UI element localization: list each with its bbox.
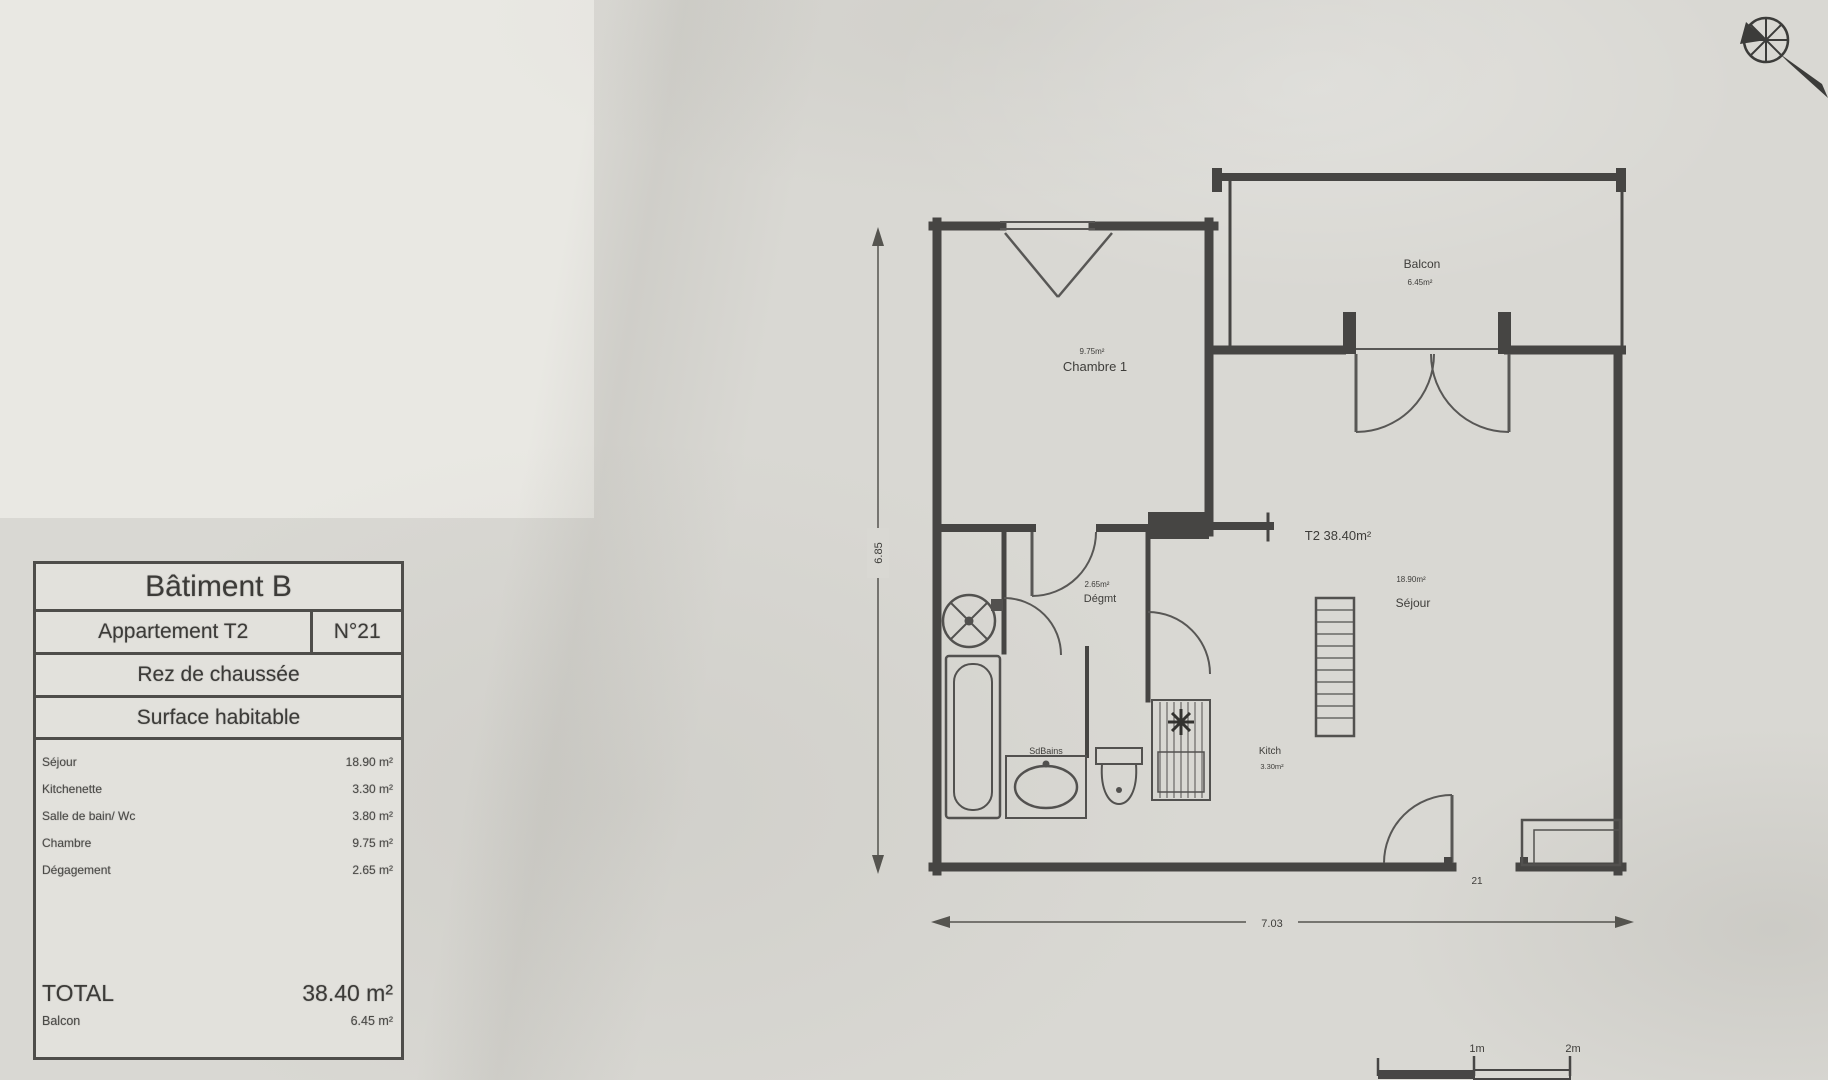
- sejour-area-label: 18.90m²: [1396, 575, 1426, 584]
- balcon-label: Balcon: [1404, 257, 1441, 271]
- balcony-door-arc-left: [1356, 354, 1434, 432]
- scale-label-1m: 1m: [1469, 1043, 1484, 1055]
- north-arrow-icon: [1740, 18, 1828, 98]
- window-casement-a: [1005, 233, 1058, 297]
- scale-bar-filled: [1378, 1070, 1474, 1079]
- kitchen-counter-rungs: [1316, 610, 1354, 718]
- balcony-door-jamb-left: [1343, 312, 1356, 354]
- dim-arrow-bottom: [872, 855, 884, 874]
- sink-faucet: [1043, 761, 1050, 768]
- toilet-drain: [1116, 787, 1122, 793]
- entrance-door-arc: [1384, 795, 1452, 863]
- fixtures: [943, 595, 1620, 865]
- window-casement-b: [1058, 233, 1112, 297]
- chambre-label: Chambre 1: [1063, 359, 1127, 374]
- degagement-area-label: 2.65m²: [1085, 580, 1110, 589]
- sink-basin: [1015, 766, 1077, 808]
- walls: [933, 222, 1622, 871]
- scale-bar: 1m 2m: [1378, 1043, 1581, 1079]
- door-arc-wc: [1148, 612, 1210, 674]
- unit-label: T2 38.40m²: [1305, 528, 1372, 543]
- entry-closet-inner: [1534, 830, 1620, 865]
- water-point: [991, 599, 1003, 611]
- doors-windows: [1000, 222, 1528, 869]
- washing-machine-hub: [965, 617, 974, 626]
- structural-column: [1148, 512, 1209, 539]
- dim-arrow-top: [872, 227, 884, 246]
- balcon-area-label: 6.45m²: [1408, 278, 1433, 287]
- chambre-area-label: 9.75m²: [1080, 347, 1105, 356]
- toilet-bowl: [1102, 764, 1137, 804]
- dim-height-label: 6.85: [873, 542, 885, 563]
- dimension-lines: 6.85 7.03: [867, 227, 1634, 932]
- compass-tail: [1780, 54, 1828, 98]
- sdbains-label: SdBains: [1029, 746, 1063, 756]
- degagement-label: Dégmt: [1084, 593, 1116, 605]
- dim-arrow-right: [1615, 916, 1634, 928]
- scale-bar-open: [1474, 1070, 1570, 1079]
- door-arc-bath: [1004, 598, 1061, 655]
- extractor-star-icon: [1168, 709, 1194, 735]
- toilet-tank: [1096, 748, 1142, 764]
- door-number-label: 21: [1471, 876, 1483, 887]
- kitch-label: Kitch: [1259, 746, 1281, 757]
- entry-closet: [1522, 820, 1620, 865]
- scale-label-2m: 2m: [1565, 1043, 1580, 1055]
- floor-plan-drawing: 9.75m² Chambre 1 Balcon 6.45m² T2 38.40m…: [0, 0, 1828, 1080]
- dim-width-label: 7.03: [1261, 918, 1282, 930]
- dim-arrow-left: [931, 916, 950, 928]
- kitch-area-label: 3.30m²: [1260, 762, 1284, 771]
- balcony-door-arc-right: [1431, 354, 1509, 432]
- sejour-label: Séjour: [1396, 596, 1431, 610]
- balcony-rail-end-left: [1212, 168, 1222, 192]
- entrance-jamb-left: [1444, 857, 1452, 869]
- kitchen-counter: [1316, 598, 1354, 736]
- balcony-door-jamb-right: [1498, 312, 1511, 354]
- bathtub-inner: [954, 664, 992, 810]
